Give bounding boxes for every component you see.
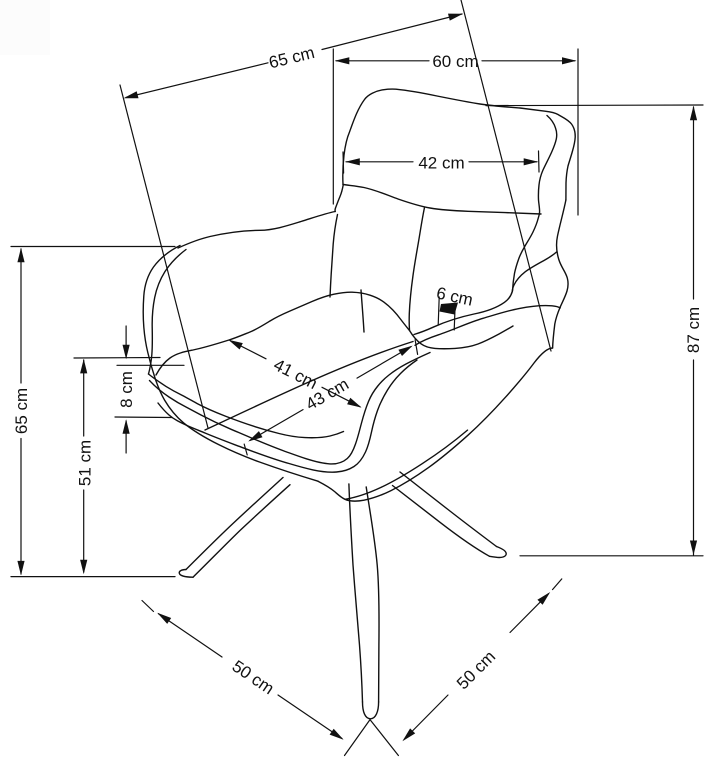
svg-text:87 cm: 87 cm [684,307,703,353]
svg-text:65 cm: 65 cm [267,43,316,72]
svg-text:8 cm: 8 cm [117,371,136,408]
svg-text:50 cm: 50 cm [453,647,499,693]
svg-text:42 cm: 42 cm [418,154,464,173]
svg-text:51 cm: 51 cm [76,440,95,486]
svg-text:60 cm: 60 cm [432,52,478,71]
svg-text:65 cm: 65 cm [12,388,31,434]
svg-text:50 cm: 50 cm [229,657,278,699]
